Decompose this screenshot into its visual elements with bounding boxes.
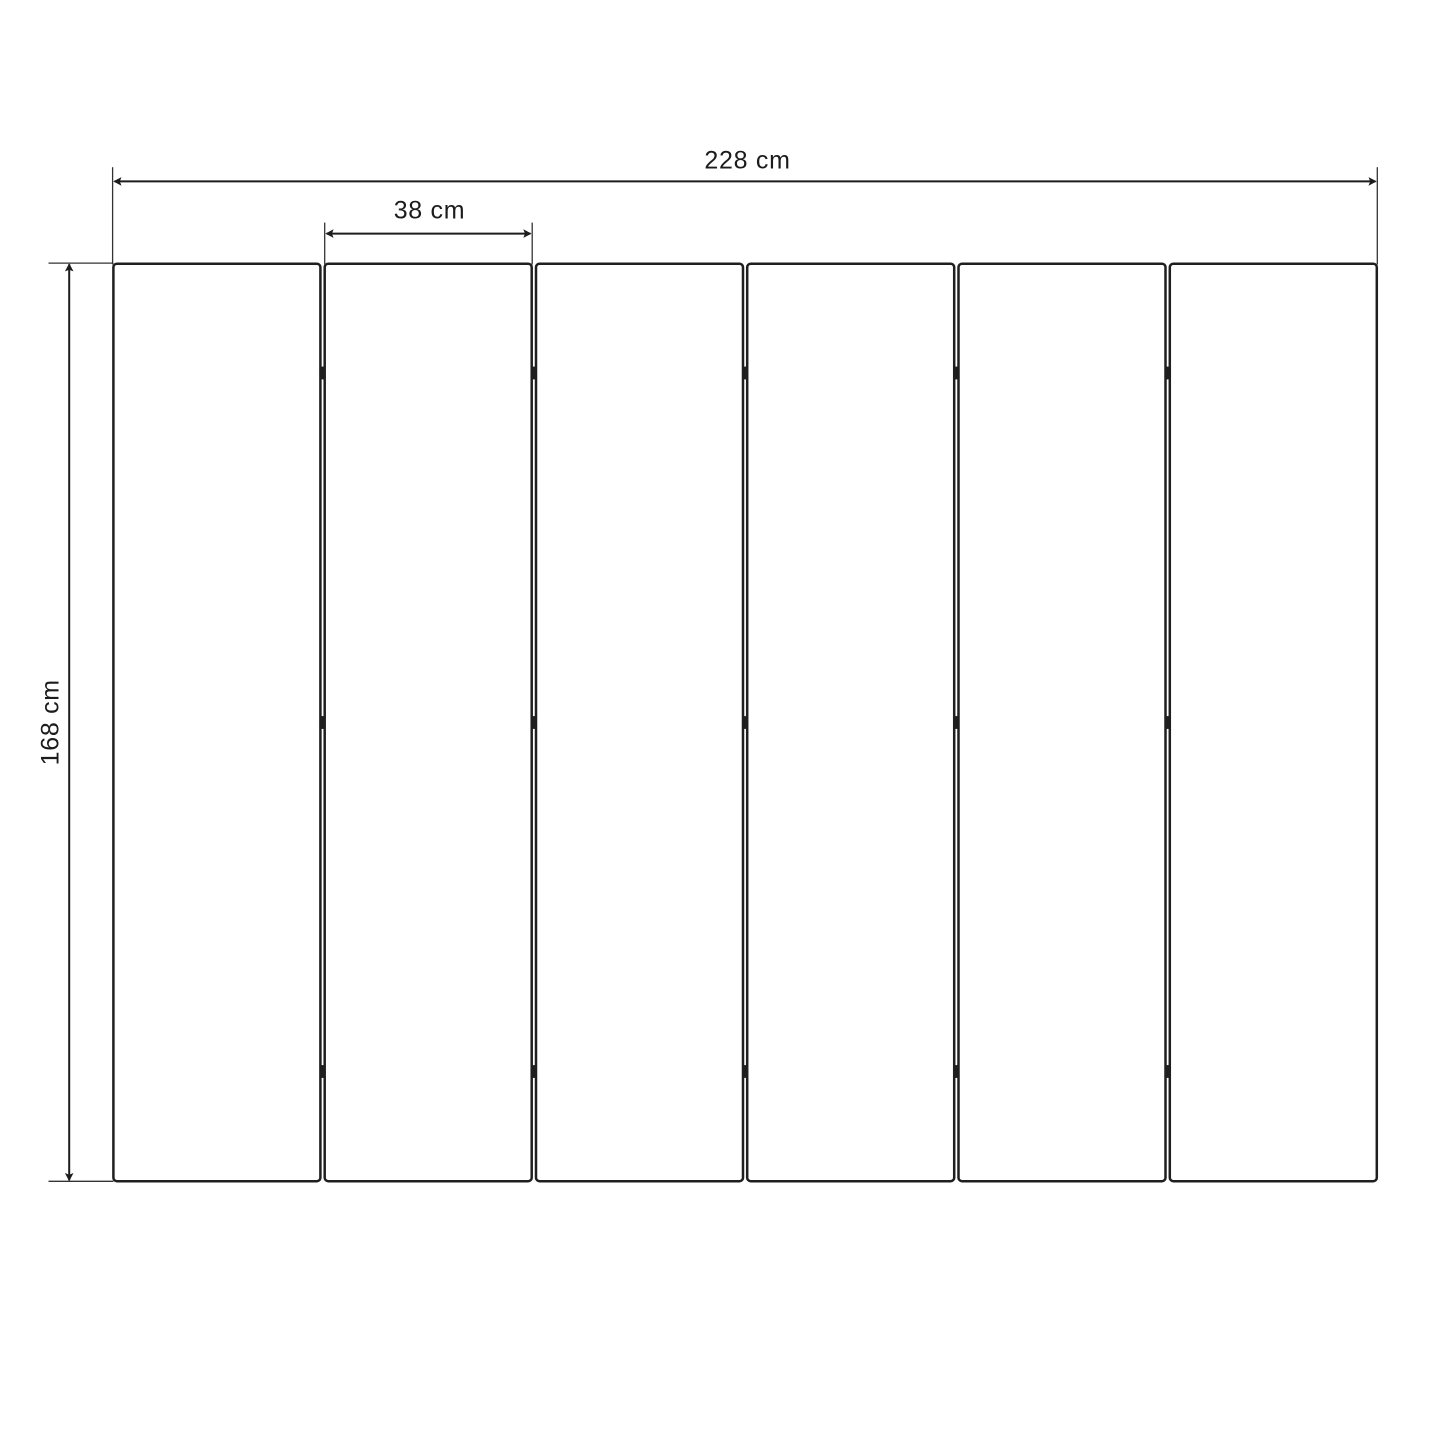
svg-text:168 cm: 168 cm xyxy=(37,679,65,765)
svg-text:38 cm: 38 cm xyxy=(394,197,466,225)
svg-text:228 cm: 228 cm xyxy=(704,147,790,175)
